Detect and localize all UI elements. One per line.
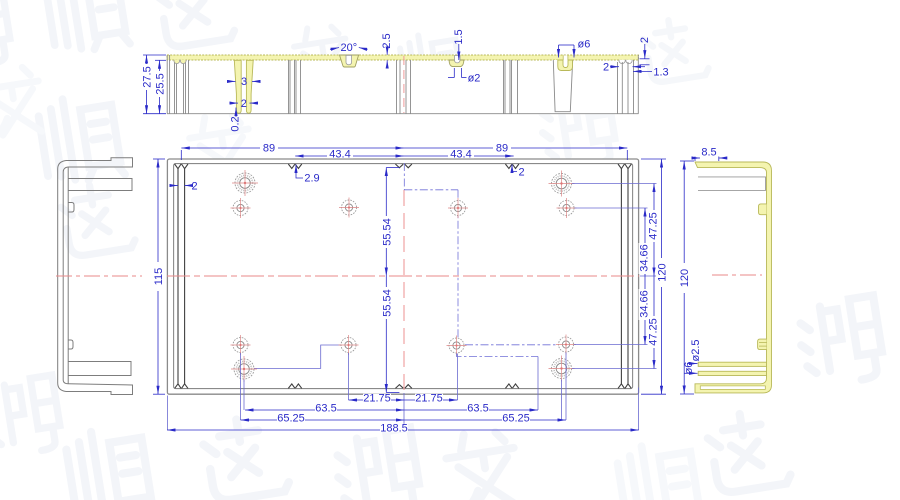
svg-text:ø2: ø2	[468, 73, 481, 85]
svg-text:2: 2	[518, 167, 524, 179]
svg-text:2.5: 2.5	[381, 33, 393, 48]
svg-text:25.5: 25.5	[155, 73, 167, 94]
svg-text:0.2: 0.2	[230, 116, 242, 131]
svg-text:21.75: 21.75	[415, 393, 443, 405]
svg-text:115: 115	[153, 268, 165, 286]
svg-text:47.25: 47.25	[648, 212, 660, 240]
svg-text:ø6: ø6	[578, 39, 591, 51]
svg-text:20°: 20°	[340, 42, 357, 54]
svg-text:55.54: 55.54	[381, 218, 393, 246]
svg-text:34.66: 34.66	[639, 244, 651, 272]
svg-text:2: 2	[191, 181, 197, 193]
svg-text:2.9: 2.9	[304, 173, 319, 185]
svg-text:1.3: 1.3	[653, 67, 668, 79]
svg-text:2: 2	[603, 62, 609, 74]
svg-text:43.4: 43.4	[450, 148, 471, 160]
svg-text:ø2.5: ø2.5	[690, 339, 702, 361]
svg-text:63.5: 63.5	[467, 403, 488, 415]
svg-text:8.5: 8.5	[701, 147, 716, 159]
svg-text:65.25: 65.25	[277, 413, 305, 425]
svg-text:89: 89	[263, 143, 275, 155]
svg-text:2: 2	[241, 98, 247, 110]
svg-text:1.5: 1.5	[453, 29, 465, 44]
svg-text:120: 120	[657, 263, 669, 281]
svg-text:63.5: 63.5	[315, 403, 336, 415]
svg-text:3: 3	[241, 76, 247, 88]
svg-text:120: 120	[679, 269, 691, 287]
svg-text:188.5: 188.5	[380, 423, 408, 435]
svg-text:21.75: 21.75	[363, 393, 391, 405]
svg-text:34.66: 34.66	[639, 290, 651, 318]
svg-text:65.25: 65.25	[502, 413, 530, 425]
svg-text:ø6: ø6	[683, 362, 695, 375]
svg-text:27.5: 27.5	[142, 66, 154, 87]
svg-text:47.25: 47.25	[648, 318, 660, 346]
svg-text:43.4: 43.4	[329, 148, 350, 160]
svg-text:89: 89	[496, 143, 508, 155]
svg-text:2: 2	[639, 37, 651, 43]
svg-text:55.54: 55.54	[381, 289, 393, 317]
